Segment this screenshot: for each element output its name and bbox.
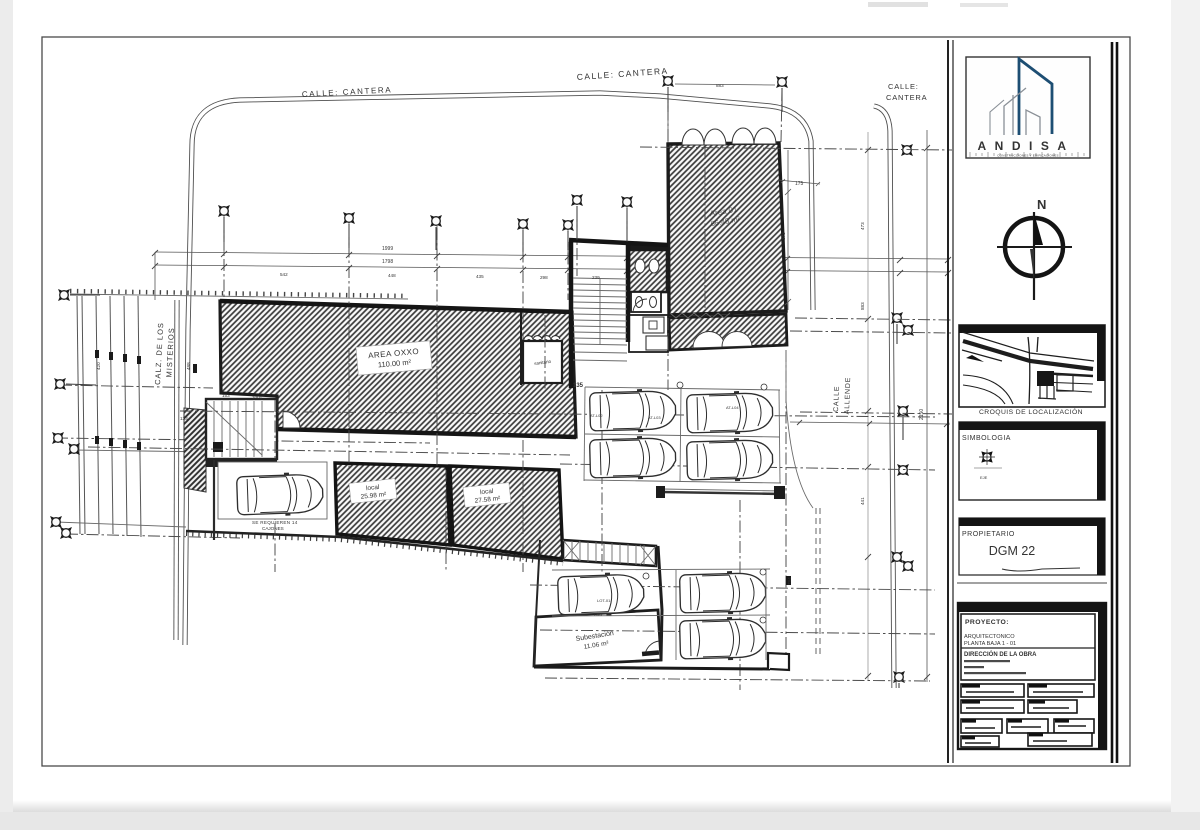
svg-text:473: 473 [860,222,865,230]
svg-text:CALZ. DE LOS: CALZ. DE LOS [153,322,165,385]
svg-text:DGM 22: DGM 22 [989,544,1036,558]
svg-text:local: local [480,488,495,496]
svg-text:883: 883 [860,302,865,310]
svg-text:CANTERA: CANTERA [886,93,927,102]
svg-text:1798: 1798 [382,259,393,265]
svg-text:CALLE: CANTERA: CALLE: CANTERA [576,66,668,82]
svg-text:AT-L04: AT-L04 [726,405,739,410]
svg-text:ANDISA: ANDISA [977,139,1074,153]
svg-text:858: 858 [594,612,602,618]
svg-text:N: N [1037,197,1046,212]
svg-text:2150: 2150 [919,409,925,420]
svg-text:CALLE:: CALLE: [888,82,919,91]
svg-text:133: 133 [180,416,188,421]
svg-text:135: 135 [573,383,584,389]
svg-text:420: 420 [96,362,101,370]
svg-text:435: 435 [476,274,484,279]
svg-text:LOT-01: LOT-01 [597,598,611,603]
svg-text:1001: 1001 [252,395,263,400]
svg-text:ALLENDE: ALLENDE [844,377,852,415]
svg-text:542: 542 [280,272,288,277]
svg-text:CONSTRUCCIONES Y EDIFICACIONES: CONSTRUCCIONES Y EDIFICACIONES [997,154,1058,158]
svg-text:373: 373 [781,232,786,240]
svg-text:CROQUIS DE LOCALIZACIÓN: CROQUIS DE LOCALIZACIÓN [979,407,1083,416]
svg-text:488: 488 [186,362,191,370]
svg-text:239: 239 [592,275,600,280]
svg-text:PLANTA BAJA 1 - 01: PLANTA BAJA 1 - 01 [964,641,1016,647]
svg-text:784: 784 [787,577,792,585]
svg-text:153: 153 [222,393,230,398]
svg-text:AT-L02: AT-L02 [590,413,603,418]
svg-text:EJE: EJE [980,475,988,480]
svg-text:PROYECTO:: PROYECTO: [965,619,1009,626]
svg-text:CALLE: CALLE [833,386,841,412]
svg-text:298: 298 [540,275,548,280]
svg-text:ARQUITECTONICO: ARQUITECTONICO [964,634,1015,640]
svg-text:SIMBOLOGIA: SIMBOLOGIA [962,435,1011,442]
svg-text:DIRECCIÓN DE LA OBRA: DIRECCIÓN DE LA OBRA [964,650,1037,658]
svg-text:441: 441 [860,497,865,505]
svg-text:AT-L03: AT-L03 [648,415,661,420]
svg-text:448: 448 [388,273,396,278]
svg-text:PROPIETARIO: PROPIETARIO [962,531,1015,538]
svg-text:local: local [366,484,381,492]
svg-text:SE REQUIEREN 14: SE REQUIEREN 14 [252,520,298,525]
svg-text:1999: 1999 [382,246,393,252]
svg-text:883: 883 [716,83,724,88]
svg-text:CAJONES: CAJONES [262,526,284,531]
